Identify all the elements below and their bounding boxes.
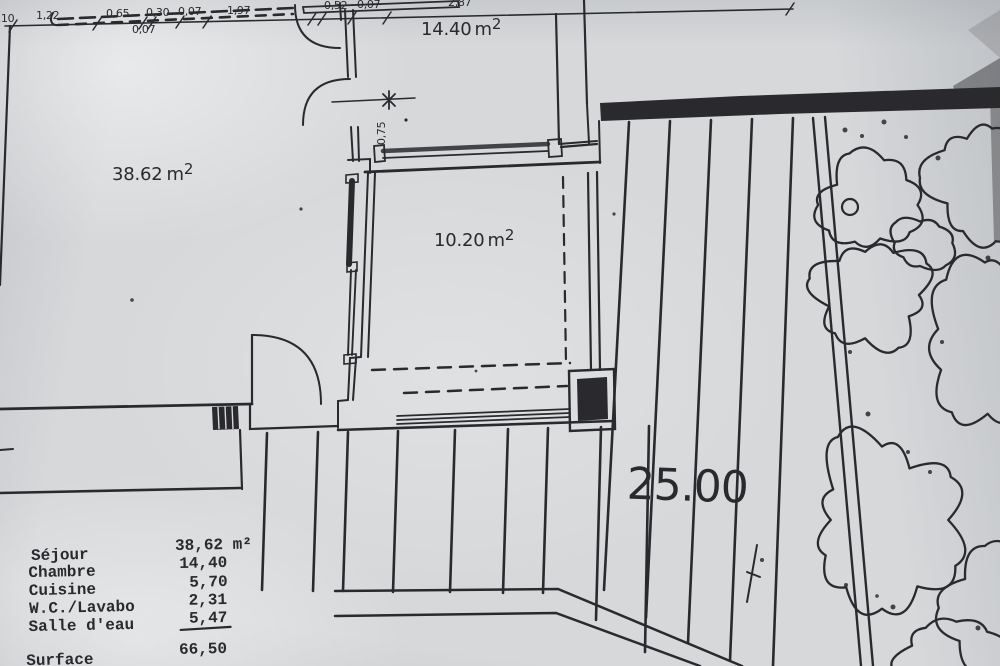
terrace-area-label: 25.00 (626, 459, 749, 514)
garden-bushes (807, 125, 1000, 666)
dashed-opening-right (563, 177, 566, 363)
deck-edge (335, 589, 742, 666)
window-band-top (383, 144, 548, 151)
room-area-sejour: 38.62m2 (112, 160, 193, 185)
door-arc (252, 335, 321, 404)
legend-value-salle-eau: 5,47 (189, 609, 228, 628)
legend-value-surface: 66,50 (179, 640, 227, 659)
legend-label-salle-eau: Salle d'eau (28, 616, 134, 636)
dim-0-52: 0,52 (324, 0, 347, 12)
dim-1-97: 1,97 (227, 4, 251, 17)
legend-value-cuisine: 5,70 (189, 573, 228, 592)
terrace-wall-band (600, 10, 1000, 242)
dim-0-07-a: 0,07 (178, 5, 202, 18)
garden-boundary (813, 117, 873, 666)
dim-0-30: 0,30 (146, 6, 170, 19)
scan-smudge-2 (990, 92, 1000, 242)
dim-passage: 0,75 (375, 121, 388, 145)
legend-value-sejour: 38,62 m² (175, 535, 252, 555)
legend-label-chambre: Chambre (28, 563, 96, 582)
dim-0-10: 0,10 (0, 12, 15, 25)
veranda-room (338, 121, 614, 430)
scan-smudge-3 (968, 10, 1000, 58)
sejour-area-value: 38.62 (112, 164, 163, 185)
dashed-opening-bottom1 (372, 363, 570, 370)
sejour-room (0, 26, 338, 493)
dim-0-07-c: 0,07 (357, 0, 381, 11)
twig (747, 545, 760, 602)
legend-label-cuisine: Cuisine (29, 581, 97, 600)
room-area-chambre: 14.40m2 (421, 15, 501, 40)
garden-details (747, 199, 858, 602)
legend-value-chambre: 14,40 (179, 554, 227, 573)
surface-legend: Séjour 38,62 m² Chambre 14,40 Cuisine 5,… (24, 535, 255, 666)
dim-0-07-b: 0,07 (132, 23, 156, 36)
legend-label-wc: W.C./Lavabo (29, 598, 135, 618)
scanned-floor-plan-page: 0,10 1,22 0,65 0,30 0,07 0,07 1,97 0,52 … (0, 0, 1000, 666)
legend-value-wc: 2,31 (188, 591, 227, 610)
scan-specks (130, 120, 990, 631)
hall-wall (303, 10, 370, 173)
dim-2-87: 2,87 (448, 0, 472, 9)
dim-1-22: 1,22 (36, 9, 59, 22)
window-band-bottom (397, 409, 570, 424)
legend-total-rule (181, 627, 231, 630)
legend-label-surface: Surface (26, 651, 94, 666)
room-area-veranda: 10.20m2 (434, 226, 514, 251)
floor-plan-drawing: 0,10 1,22 0,65 0,30 0,07 0,07 1,97 0,52 … (0, 0, 1000, 666)
dashed-opening-bottom2 (404, 386, 567, 393)
deck-slats-lower (262, 426, 649, 652)
deck-slats-upper (604, 118, 793, 666)
window-band-left (349, 181, 352, 264)
passage-dimension: 0,75 (332, 91, 415, 145)
dim-0-65: 0,65 (106, 7, 130, 20)
chambre-room (556, 0, 597, 144)
